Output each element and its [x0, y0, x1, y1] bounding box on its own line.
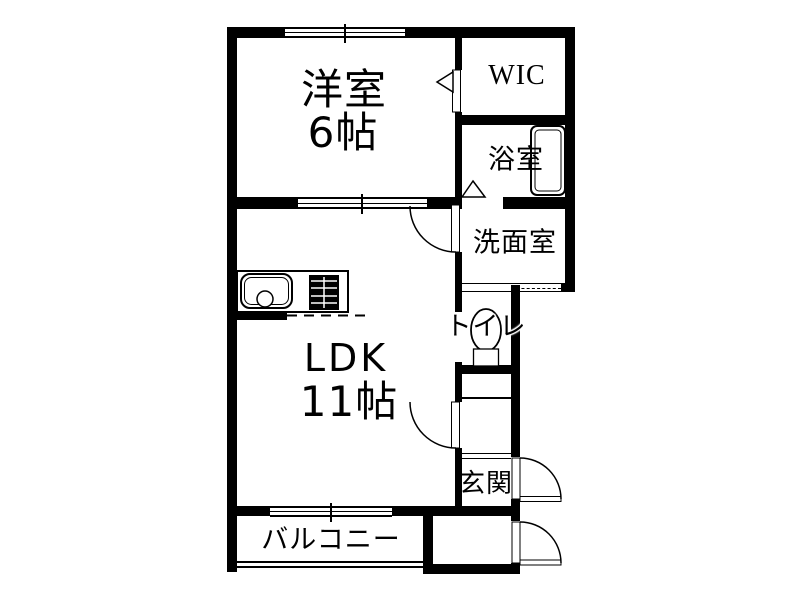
door-arc: [520, 458, 561, 499]
western-room-label: 洋室: [301, 69, 387, 111]
toilet-label: トイレ: [445, 314, 526, 340]
door-arc: [410, 402, 456, 448]
door-arc: [410, 206, 456, 252]
floor-plan: 洋室 6帖 LDK 11帖 WIC 浴室 洗面室 トイレ 玄関 バルコニー: [0, 0, 800, 600]
balcony-label: バルコニー: [261, 527, 400, 554]
washroom-label: 洗面室: [473, 230, 557, 257]
ldk-size: 11帖: [300, 381, 398, 423]
bathroom-label: 浴室: [488, 147, 544, 174]
storage-door: [512, 522, 561, 565]
western-room-size: 6帖: [308, 112, 379, 154]
sink-icon: [241, 274, 292, 308]
front-door: [512, 458, 561, 502]
ldk-label: LDK: [304, 339, 388, 377]
hall-door: [410, 402, 460, 448]
bath-door-icon: [462, 181, 485, 197]
stove-icon: [309, 275, 339, 310]
entrance-label: 玄関: [459, 471, 513, 497]
folding-door-icon: [437, 72, 453, 92]
fixtures-layer: [0, 0, 800, 600]
washroom-door: [410, 205, 460, 252]
wic-label: WIC: [488, 62, 545, 90]
kitchen-counter: [237, 271, 368, 316]
wic-door: [437, 70, 461, 112]
door-arc: [520, 522, 561, 563]
